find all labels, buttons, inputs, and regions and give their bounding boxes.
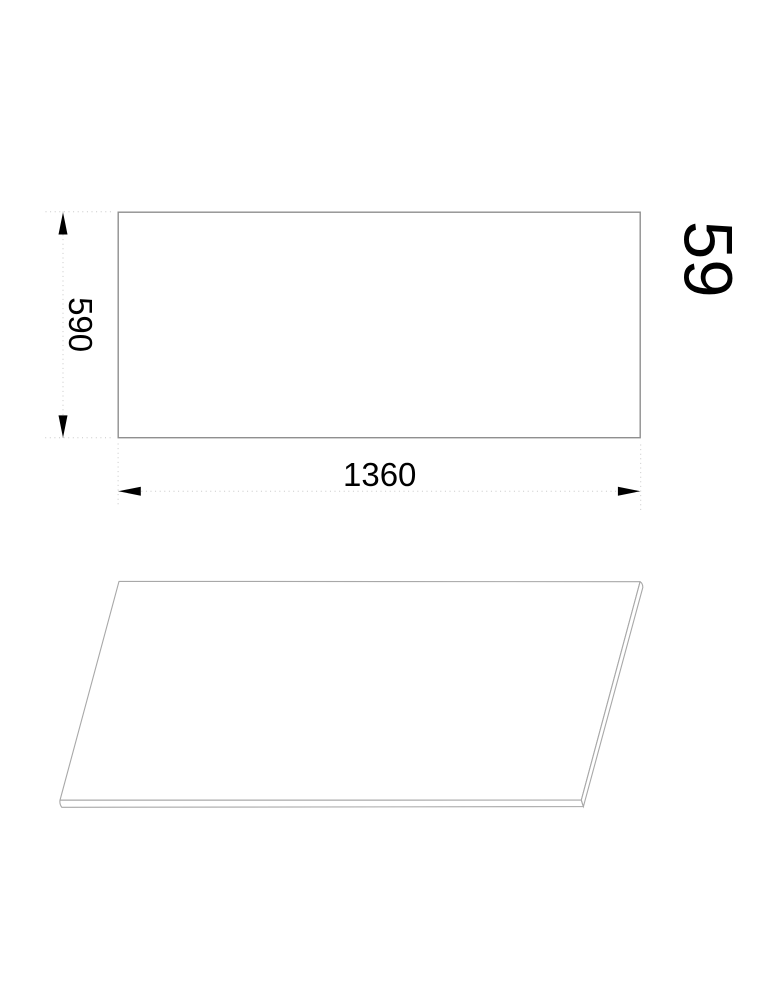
svg-text:1360: 1360 xyxy=(343,456,416,493)
svg-text:59: 59 xyxy=(669,221,746,298)
svg-text:590: 590 xyxy=(62,297,99,352)
